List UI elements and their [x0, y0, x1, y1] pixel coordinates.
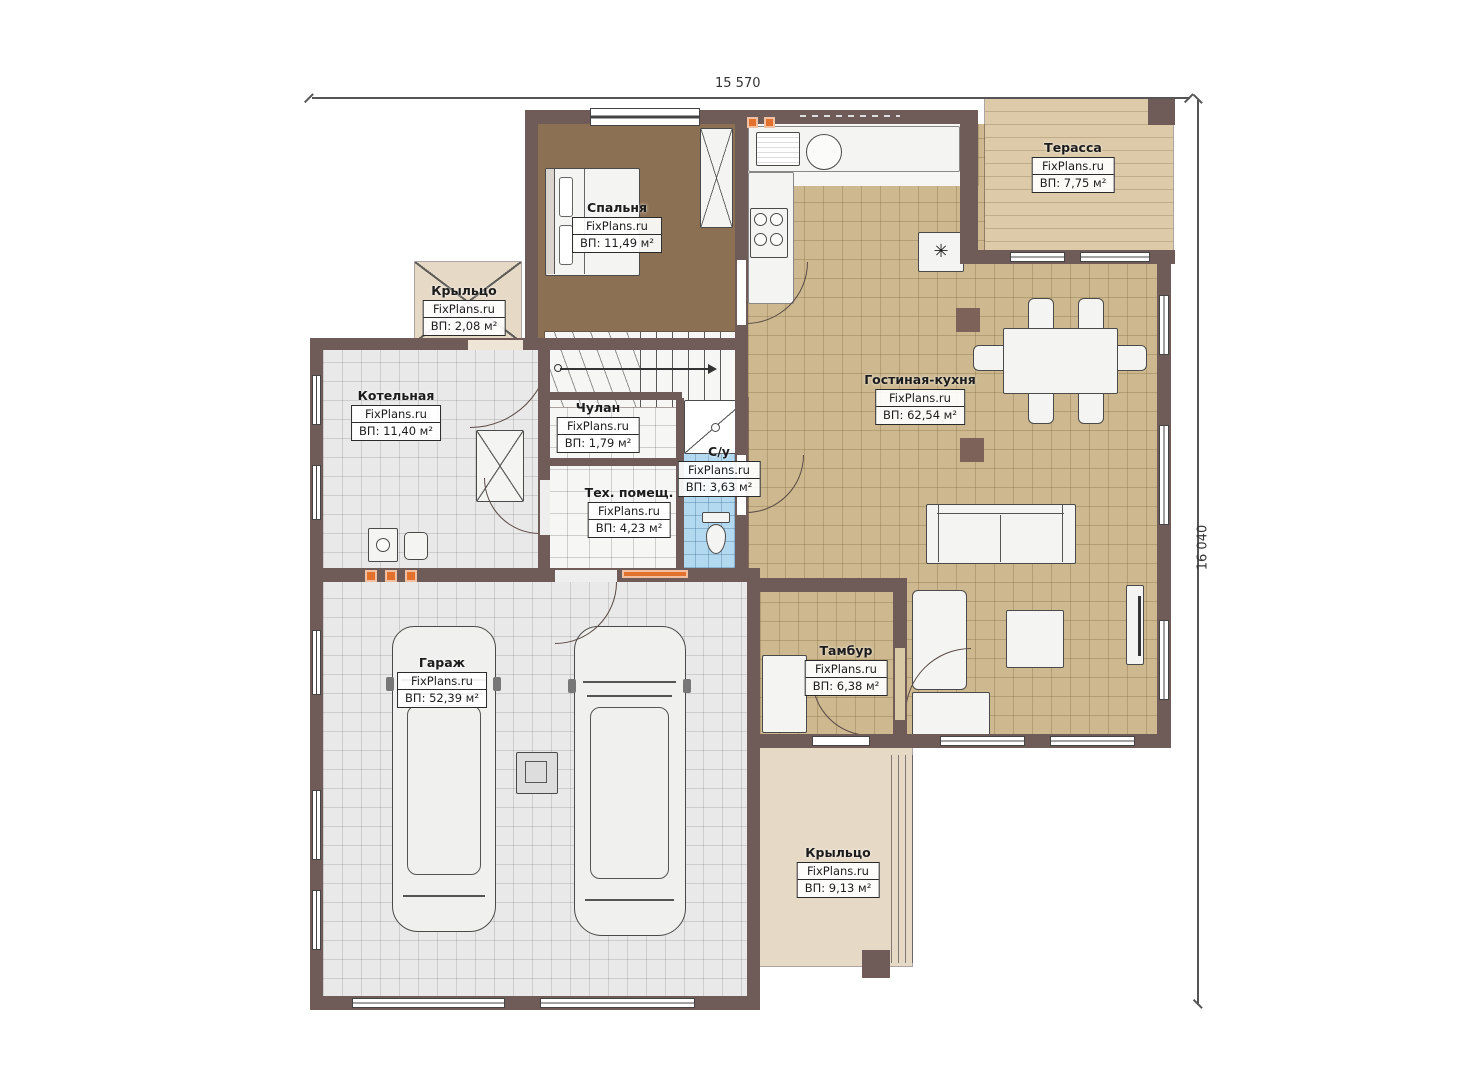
window-left-1: [312, 375, 321, 425]
label-bedroom: Спальня FixPlans.ru ВП: 11,49 м²: [572, 200, 662, 253]
vent-garage-1: [365, 570, 377, 582]
car-1-rear-line: [403, 895, 485, 897]
brand-link: FixPlans.ru: [798, 863, 879, 880]
porch-steps: [891, 755, 913, 963]
coffee-table: [1006, 610, 1064, 668]
stove: [750, 208, 788, 258]
garage-door-1: [352, 998, 505, 1008]
brand-link: FixPlans.ru: [424, 301, 505, 318]
burner-3: [754, 233, 767, 246]
vent-top-1: [747, 117, 758, 128]
wall-garage-right: [747, 568, 760, 1010]
room-area: ВП: 52,39 м²: [398, 690, 486, 706]
vent-garage-3: [405, 570, 417, 582]
wall-vestibule-top: [747, 578, 907, 592]
washer: [368, 528, 398, 562]
washer-door: [376, 538, 390, 552]
dining-chair-4: [1078, 390, 1104, 424]
brand-link: FixPlans.ru: [573, 218, 661, 235]
vent-top-2: [764, 117, 775, 128]
door-gap-porch-top: [468, 340, 523, 350]
garage-door-2: [540, 998, 695, 1008]
tv-screen: [1138, 596, 1141, 656]
room-name: Чулан: [557, 400, 640, 415]
label-boiler: Котельная FixPlans.ru ВП: 11,40 м²: [351, 388, 441, 441]
bed-pillow-1: [559, 177, 573, 217]
column-2: [960, 438, 984, 462]
bed-headboard: [546, 169, 555, 274]
door-gap-vestibule-living: [895, 648, 905, 720]
label-garage: Гараж FixPlans.ru ВП: 52,39 м²: [397, 655, 487, 708]
label-tech: Тех. помещ. FixPlans.ru ВП: 4,23 м²: [585, 485, 674, 538]
fireplace: ✳: [918, 232, 964, 272]
room-area: ВП: 6,38 м²: [806, 678, 887, 694]
room-area: ВП: 11,49 м²: [573, 235, 661, 251]
wall-partition-closet-top: [550, 392, 682, 400]
door-gap-boiler: [540, 480, 550, 535]
car-1-mirror-right: [493, 677, 501, 691]
dining-chair-2: [1078, 298, 1104, 332]
door-gap-bedroom: [737, 260, 746, 325]
window-living-bottom-1: [940, 736, 1025, 746]
brand-link: FixPlans.ru: [558, 418, 639, 435]
sofa-back-line: [937, 513, 1064, 514]
door-terrace-2: [1080, 252, 1150, 262]
car-2-windshield-2: [587, 695, 672, 697]
floor-drain-inner: [525, 761, 547, 783]
car-1-mirror-left: [386, 677, 394, 691]
room-name: Тамбур: [805, 643, 888, 658]
room-name: Тех. помещ.: [585, 485, 674, 500]
car-2-rear-line: [585, 899, 674, 901]
shower-drain: [711, 423, 720, 432]
stair-arrow-head: [708, 364, 717, 374]
brand-link: FixPlans.ru: [1033, 158, 1114, 175]
room-area: ВП: 2,08 м²: [424, 318, 505, 334]
burner-4: [770, 233, 783, 246]
column-1: [956, 308, 980, 332]
label-terrace: Терасса FixPlans.ru ВП: 7,75 м²: [1032, 140, 1115, 193]
car-2: [574, 626, 686, 936]
vent-garage-2: [385, 570, 397, 582]
utility-sink: [404, 532, 428, 560]
wall-bedroom-bottom: [525, 338, 745, 350]
window-right-2: [1159, 425, 1169, 525]
brand-link: FixPlans.ru: [679, 462, 760, 479]
toilet-tank: [702, 512, 730, 523]
room-name: Спальня: [572, 200, 662, 215]
sofa: [926, 504, 1076, 564]
room-area: ВП: 62,54 м²: [876, 407, 964, 423]
dining-chair-5: [973, 345, 1007, 371]
window-living-bottom-2: [1050, 736, 1135, 746]
burner-2: [770, 213, 783, 226]
brand-link: FixPlans.ru: [589, 503, 670, 520]
stair-arrow-start: [554, 364, 562, 372]
wardrobe-vestibule: [762, 655, 807, 733]
floor-drain: [516, 752, 558, 794]
brand-link: FixPlans.ru: [876, 390, 964, 407]
porch-pillar: [862, 950, 890, 978]
car-2-mirror-left: [568, 679, 576, 693]
car-2-mirror-right: [683, 679, 691, 693]
label-bathroom: С/у FixPlans.ru ВП: 3,63 м²: [678, 444, 761, 497]
window-bedroom-top: [590, 108, 700, 126]
room-area: ВП: 7,75 м²: [1033, 175, 1114, 191]
window-left-4: [312, 790, 321, 860]
door-gap-entrance: [812, 736, 870, 746]
bed-pillow-2: [559, 225, 573, 265]
room-name: С/у: [678, 444, 761, 459]
car-2-windshield: [583, 681, 676, 683]
door-gap-garage-hall: [555, 570, 617, 582]
burner-1: [754, 213, 767, 226]
tv-stand: [1126, 585, 1144, 665]
window-right-3: [1159, 620, 1169, 700]
dining-chair-1: [1028, 298, 1054, 332]
label-porch-top: Крыльцо FixPlans.ru ВП: 2,08 м²: [423, 283, 506, 336]
wall-hall-left: [538, 350, 550, 582]
sofa-seat-line: [1000, 515, 1001, 562]
dim-label-width: 15 570: [715, 76, 761, 91]
room-name: Гараж: [397, 655, 487, 670]
terrace-pillar: [1148, 98, 1175, 125]
brand-link: FixPlans.ru: [352, 406, 440, 423]
dim-label-height: 16 040: [1195, 525, 1210, 571]
car-2-roof: [590, 707, 669, 879]
room-name: Крыльцо: [797, 845, 880, 860]
floor-plan: ✳: [0, 0, 1473, 1080]
room-area: ВП: 11,40 м²: [352, 423, 440, 439]
window-kitchen-dashed: [800, 115, 900, 117]
window-left-3: [312, 630, 321, 695]
wall-partition-closet-bottom: [550, 458, 682, 466]
dining-chair-3: [1028, 390, 1054, 424]
kitchen-sink: [756, 132, 800, 166]
label-vestibule: Тамбур FixPlans.ru ВП: 6,38 м²: [805, 643, 888, 696]
room-area: ВП: 3,63 м²: [679, 479, 760, 495]
label-closet: Чулан FixPlans.ru ВП: 1,79 м²: [557, 400, 640, 453]
room-name: Терасса: [1032, 140, 1115, 155]
room-area: ВП: 1,79 м²: [558, 435, 639, 451]
label-living: Гостиная-кухня FixPlans.ru ВП: 62,54 м²: [864, 372, 976, 425]
brand-link: FixPlans.ru: [398, 673, 486, 690]
door-terrace-1: [1010, 252, 1065, 262]
dining-table: [1003, 328, 1118, 394]
wall-bedroom-left: [525, 110, 538, 350]
room-name: Котельная: [351, 388, 441, 403]
brand-link: FixPlans.ru: [806, 661, 887, 678]
car-1-roof: [407, 705, 481, 875]
radiator-strip: [622, 570, 688, 578]
wall-kitchen-terrace: [960, 110, 978, 260]
sofa-arm-left: [927, 505, 939, 562]
room-area: ВП: 9,13 м²: [798, 880, 879, 896]
window-right-1: [1159, 295, 1169, 355]
stair-arrow-line: [560, 368, 710, 370]
wardrobe-bedroom: [700, 128, 733, 228]
window-left-2: [312, 465, 321, 520]
dining-chair-6: [1113, 345, 1147, 371]
window-left-5: [312, 890, 321, 950]
room-name: Крыльцо: [423, 283, 506, 298]
room-name: Гостиная-кухня: [864, 372, 976, 387]
fireplace-icon: ✳: [933, 241, 948, 262]
sofa-arm-right: [1062, 505, 1074, 562]
room-area: ВП: 4,23 м²: [589, 520, 670, 536]
dim-line-top: [312, 97, 1190, 99]
kitchen-hob-round: [806, 134, 842, 170]
label-porch-bottom: Крыльцо FixPlans.ru ВП: 9,13 м²: [797, 845, 880, 898]
